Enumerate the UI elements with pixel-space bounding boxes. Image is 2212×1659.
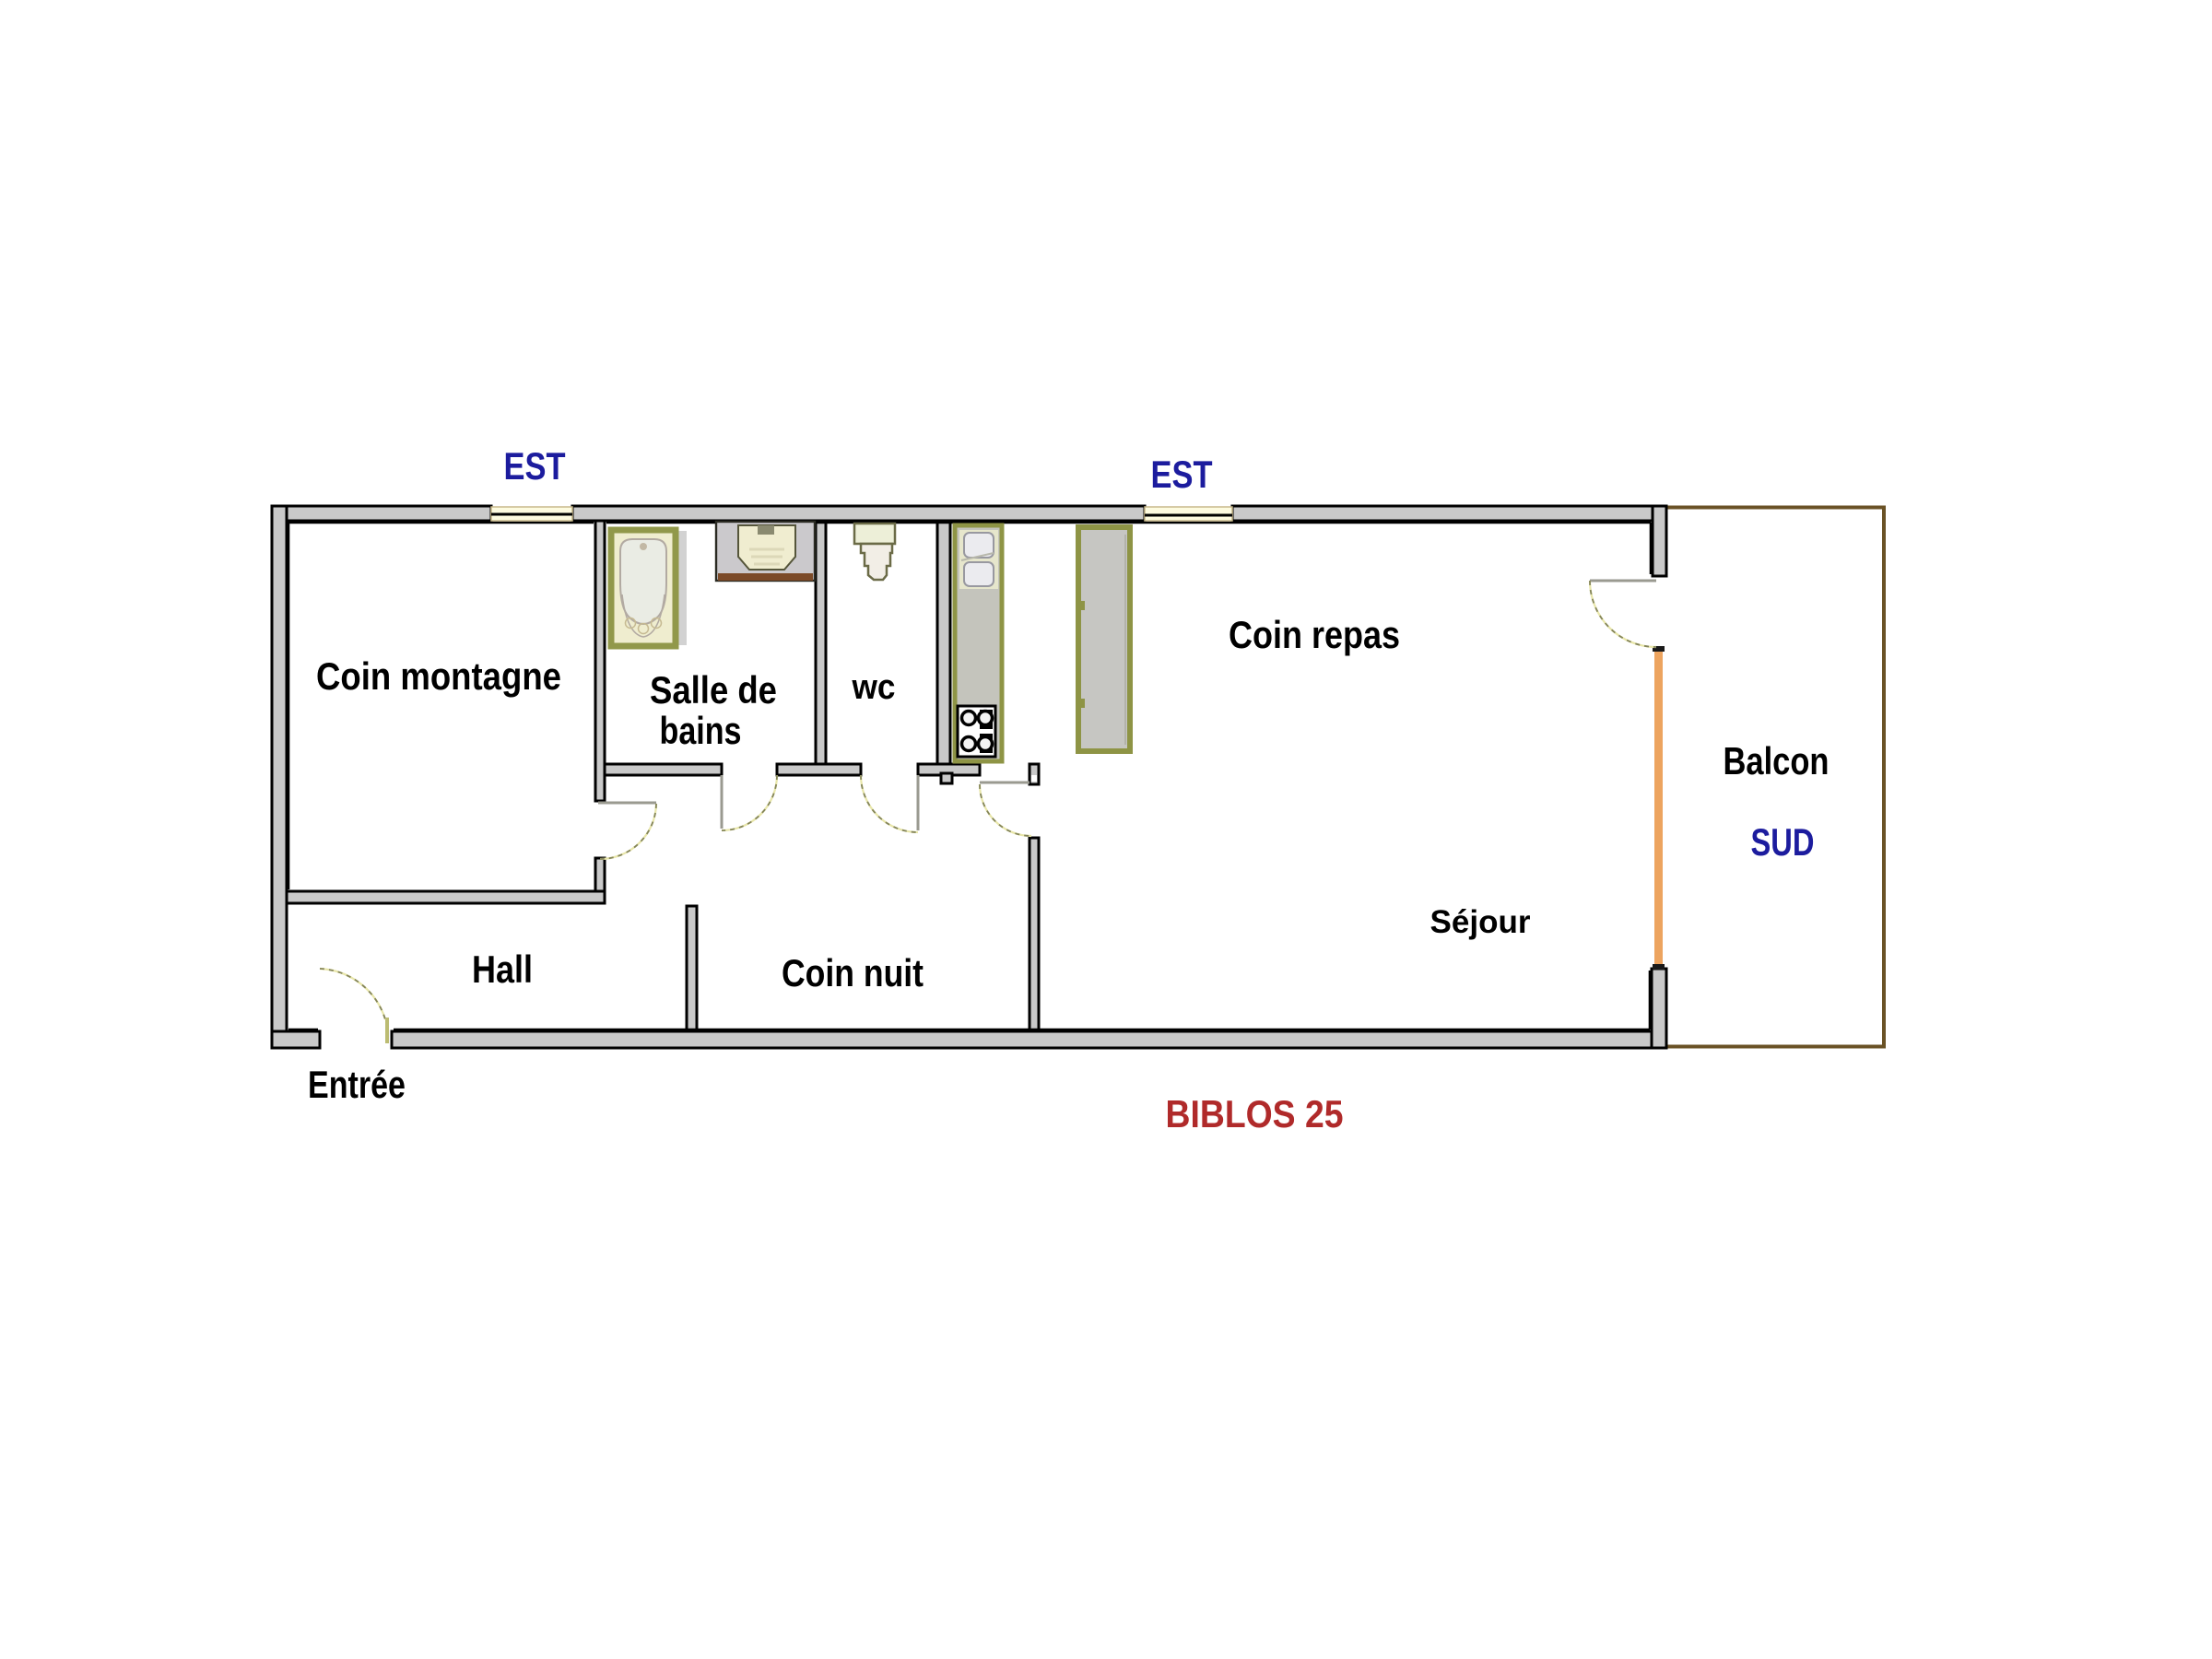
svg-text:wc: wc <box>852 668 896 707</box>
svg-text:Coin repas: Coin repas <box>1229 613 1400 656</box>
svg-text:Entrée: Entrée <box>308 1063 406 1106</box>
svg-text:Séjour: Séjour <box>1430 904 1531 940</box>
svg-text:SUD: SUD <box>1751 820 1815 864</box>
svg-text:bains: bains <box>660 709 742 752</box>
svg-text:Coin nuit: Coin nuit <box>782 951 924 994</box>
svg-text:BIBLOS 25: BIBLOS 25 <box>1166 1092 1344 1135</box>
svg-text:Balcon: Balcon <box>1724 739 1830 782</box>
svg-text:Hall: Hall <box>472 947 533 991</box>
svg-text:EST: EST <box>1151 453 1213 496</box>
svg-text:EST: EST <box>504 444 566 488</box>
svg-text:Coin montagne: Coin montagne <box>316 654 561 698</box>
svg-text:Salle de: Salle de <box>650 668 777 712</box>
